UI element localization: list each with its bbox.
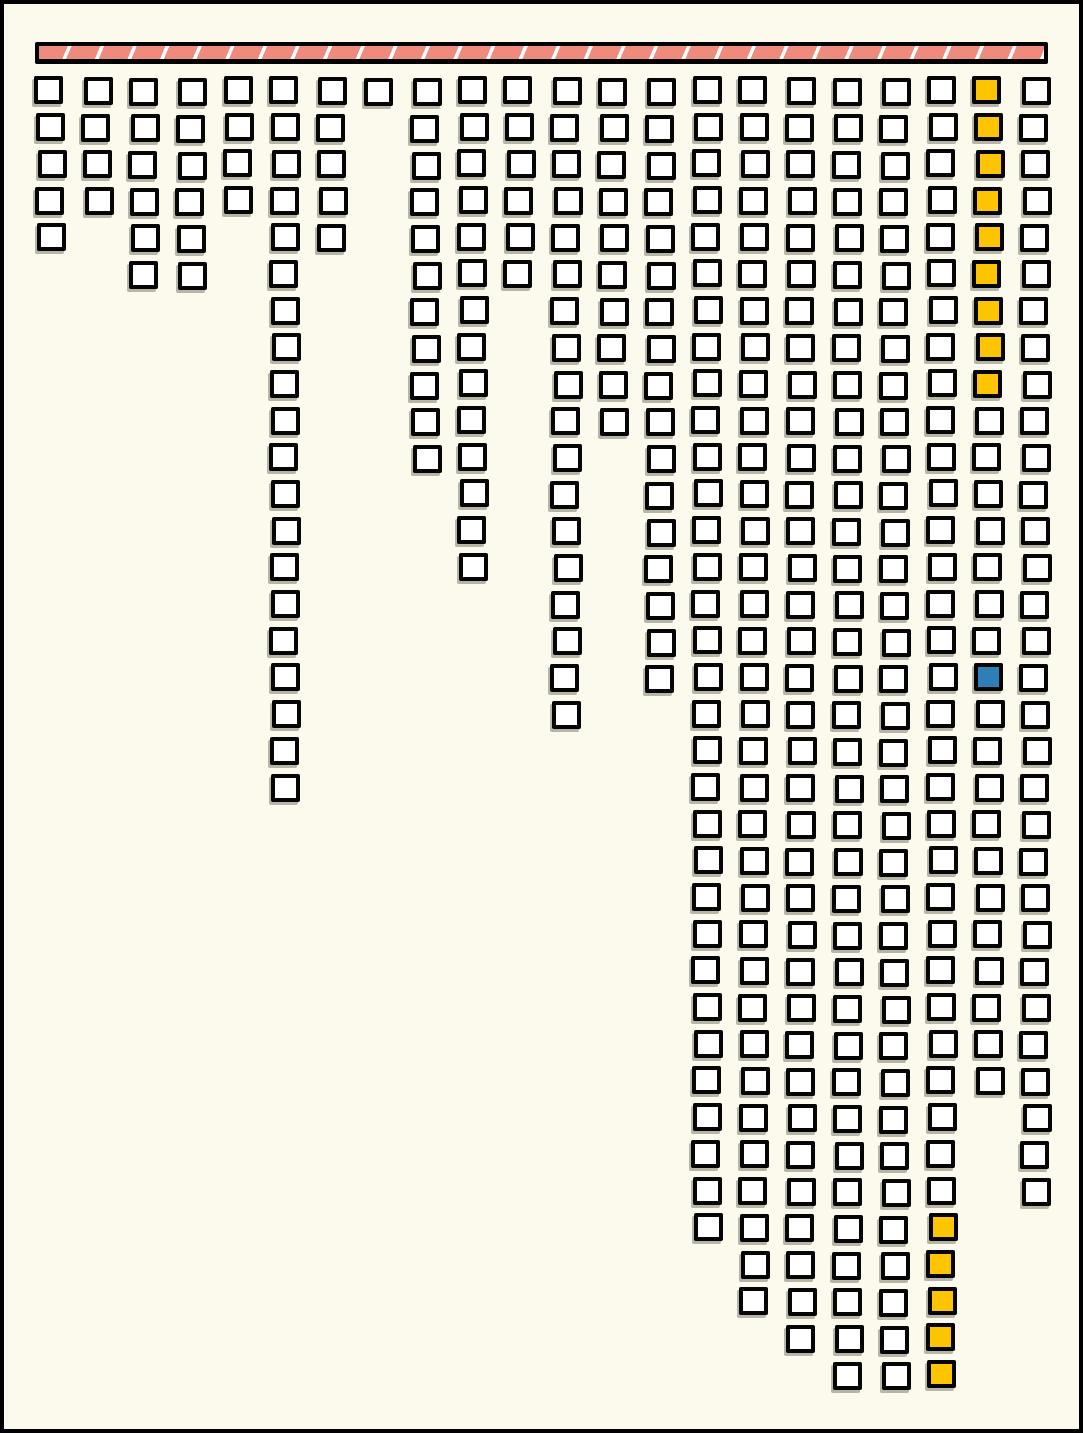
unit-square xyxy=(1022,627,1051,655)
unit-square xyxy=(832,1252,861,1280)
unit-square xyxy=(786,701,815,729)
unit-square xyxy=(1020,1141,1049,1169)
unit-square xyxy=(459,369,488,397)
unit-square xyxy=(974,113,1003,141)
unit-square xyxy=(410,188,439,216)
unit-square xyxy=(879,849,908,877)
unit-square xyxy=(786,884,815,912)
unit-square xyxy=(272,150,301,178)
unit-square xyxy=(1021,150,1050,178)
unit-square xyxy=(785,481,814,509)
unit-square xyxy=(410,298,439,326)
unit-square xyxy=(972,810,1001,838)
unit-square xyxy=(976,1067,1005,1095)
unit-square xyxy=(225,113,254,141)
unit-square xyxy=(1020,774,1049,802)
unit-square xyxy=(882,262,911,290)
unit-square xyxy=(832,701,861,729)
unit-square xyxy=(741,333,770,361)
unit-square xyxy=(460,296,489,324)
unit-square xyxy=(554,554,583,582)
unit-square xyxy=(551,591,580,619)
unit-square xyxy=(600,298,629,326)
unit-square xyxy=(81,114,110,142)
unit-square xyxy=(879,922,908,950)
unit-square xyxy=(1021,701,1050,729)
unit-square xyxy=(879,482,908,510)
unit-square xyxy=(600,224,629,252)
unit-square xyxy=(927,76,956,104)
unit-square xyxy=(881,519,910,547)
unit-square xyxy=(881,152,910,180)
unit-square xyxy=(645,115,674,143)
unit-square xyxy=(832,885,861,913)
unit-square xyxy=(691,223,720,251)
unit-square xyxy=(976,517,1005,545)
unit-square xyxy=(834,848,863,876)
unit-square xyxy=(927,993,956,1021)
unit-square xyxy=(833,1105,862,1133)
unit-square xyxy=(269,260,298,288)
unit-square xyxy=(973,187,1002,215)
unit-square xyxy=(269,76,298,104)
unit-square xyxy=(694,846,723,874)
unit-square xyxy=(882,1362,911,1390)
unit-square xyxy=(926,956,955,984)
unit-square xyxy=(37,223,66,251)
unit-square xyxy=(740,1214,769,1242)
unit-square xyxy=(645,665,674,693)
unit-square xyxy=(1023,371,1052,399)
unit-square xyxy=(271,113,300,141)
unit-square xyxy=(786,958,815,986)
unit-square xyxy=(85,187,114,215)
unit-square xyxy=(786,1141,815,1169)
unit-square xyxy=(786,774,815,802)
unit-square xyxy=(694,296,723,324)
unit-square xyxy=(692,516,721,544)
unit-square xyxy=(412,152,441,180)
unit-square xyxy=(552,334,581,362)
unit-square xyxy=(694,1213,723,1241)
unit-square xyxy=(644,555,673,583)
unit-square xyxy=(691,1140,720,1168)
unit-square xyxy=(691,956,720,984)
unit-square xyxy=(129,261,158,289)
unit-square xyxy=(879,1216,908,1244)
unit-square xyxy=(553,77,582,105)
unit-square xyxy=(693,736,722,764)
unit-square xyxy=(646,408,675,436)
unit-square xyxy=(1022,260,1051,288)
unit-square xyxy=(413,78,442,106)
unit-square xyxy=(224,186,253,214)
unit-square xyxy=(271,407,300,435)
unit-square xyxy=(741,700,770,728)
unit-square xyxy=(879,188,908,216)
unit-square xyxy=(741,1067,770,1095)
unit-square xyxy=(503,260,532,288)
unit-square xyxy=(785,1214,814,1242)
unit-square xyxy=(271,663,300,691)
unit-square xyxy=(929,479,958,507)
unit-square xyxy=(740,590,769,618)
unit-square xyxy=(598,78,627,106)
unit-square xyxy=(271,774,300,802)
unit-square xyxy=(926,590,955,618)
unit-square xyxy=(740,480,769,508)
unit-square xyxy=(926,1323,955,1351)
unit-square xyxy=(316,114,345,142)
unit-square xyxy=(269,443,298,471)
unit-square xyxy=(552,517,581,545)
unit-square xyxy=(975,223,1004,251)
unit-square xyxy=(740,847,769,875)
unit-square xyxy=(972,627,1001,655)
unit-square xyxy=(1022,444,1051,472)
unit-square xyxy=(786,517,815,545)
unit-square xyxy=(1019,481,1048,509)
unit-square xyxy=(692,1066,721,1094)
unit-square xyxy=(457,516,486,544)
chart-canvas xyxy=(0,0,1083,1433)
unit-square xyxy=(1022,77,1051,105)
unit-square xyxy=(832,1068,861,1096)
unit-square xyxy=(740,297,769,325)
unit-square xyxy=(411,225,440,253)
unit-square xyxy=(741,517,770,545)
unit-square xyxy=(833,555,862,583)
unit-square xyxy=(835,958,864,986)
unit-square xyxy=(974,1030,1003,1058)
unit-square xyxy=(973,370,1002,398)
unit-square xyxy=(738,627,767,655)
unit-square xyxy=(741,884,770,912)
unit-square xyxy=(644,372,673,400)
unit-square xyxy=(835,1142,864,1170)
unit-square xyxy=(926,1250,955,1278)
unit-square xyxy=(1023,187,1052,215)
unit-square xyxy=(739,553,768,581)
unit-square xyxy=(928,186,957,214)
unit-square xyxy=(926,406,955,434)
unit-square xyxy=(786,334,815,362)
unit-square xyxy=(833,1178,862,1206)
unit-square xyxy=(786,1251,815,1279)
unit-square xyxy=(926,516,955,544)
unit-square xyxy=(1021,517,1050,545)
unit-square xyxy=(647,335,676,363)
unit-square xyxy=(788,371,817,399)
unit-square xyxy=(128,151,157,179)
unit-square xyxy=(928,1287,957,1315)
unit-square xyxy=(271,223,300,251)
unit-square xyxy=(973,920,1002,948)
unit-square xyxy=(319,187,348,215)
unit-square xyxy=(223,149,252,177)
unit-square xyxy=(271,297,300,325)
unit-square xyxy=(881,702,910,730)
unit-square xyxy=(834,481,863,509)
unit-square xyxy=(1019,664,1048,692)
unit-square xyxy=(317,224,346,252)
unit-square xyxy=(460,479,489,507)
unit-square xyxy=(554,371,583,399)
unit-square xyxy=(786,224,815,252)
unit-square xyxy=(879,1106,908,1134)
unit-square xyxy=(692,149,721,177)
unit-square xyxy=(270,737,299,765)
unit-square xyxy=(693,626,722,654)
unit-square xyxy=(788,1288,817,1316)
unit-square xyxy=(833,738,862,766)
unit-square xyxy=(694,1030,723,1058)
unit-square xyxy=(974,663,1003,691)
unit-square xyxy=(458,443,487,471)
unit-square xyxy=(271,590,300,618)
unit-square xyxy=(551,407,580,435)
unit-square xyxy=(973,553,1002,581)
unit-square xyxy=(834,298,863,326)
unit-square xyxy=(413,445,442,473)
unit-square xyxy=(740,407,769,435)
unit-square xyxy=(83,150,112,178)
unit-square xyxy=(926,700,955,728)
unit-square xyxy=(788,737,817,765)
unit-square xyxy=(833,445,862,473)
unit-square xyxy=(928,920,957,948)
unit-square xyxy=(787,811,816,839)
unit-square xyxy=(833,811,862,839)
unit-square xyxy=(459,186,488,214)
unit-square xyxy=(550,114,579,142)
unit-square xyxy=(833,1362,862,1390)
unit-square xyxy=(553,627,582,655)
unit-square xyxy=(740,223,769,251)
unit-square xyxy=(741,150,770,178)
unit-square xyxy=(880,408,909,436)
unit-square xyxy=(597,151,626,179)
unit-square xyxy=(694,479,723,507)
unit-square xyxy=(693,76,722,104)
unit-square xyxy=(645,298,674,326)
unit-square xyxy=(881,335,910,363)
unit-square xyxy=(927,810,956,838)
unit-square xyxy=(1019,848,1048,876)
unit-square xyxy=(178,78,207,106)
unit-square xyxy=(1023,921,1052,949)
unit-square xyxy=(1019,114,1048,142)
unit-square xyxy=(882,445,911,473)
unit-square xyxy=(785,114,814,142)
unit-square xyxy=(835,408,864,436)
unit-square xyxy=(503,76,532,104)
unit-square xyxy=(410,115,439,143)
unit-square xyxy=(553,444,582,472)
unit-square xyxy=(738,76,767,104)
unit-square xyxy=(457,149,486,177)
unit-square xyxy=(457,333,486,361)
unit-square xyxy=(929,846,958,874)
unit-square xyxy=(882,996,911,1024)
unit-square xyxy=(554,187,583,215)
unit-square xyxy=(926,883,955,911)
unit-square xyxy=(834,114,863,142)
unit-square xyxy=(175,188,204,216)
unit-square xyxy=(882,78,911,106)
unit-square xyxy=(929,663,958,691)
unit-square xyxy=(693,259,722,287)
unit-square xyxy=(928,1103,957,1131)
unit-square xyxy=(176,115,205,143)
unit-square xyxy=(552,701,581,729)
unit-square xyxy=(833,261,862,289)
unit-square xyxy=(269,627,298,655)
unit-square xyxy=(927,1360,956,1388)
unit-square xyxy=(693,443,722,471)
unit-square xyxy=(787,627,816,655)
unit-square xyxy=(929,296,958,324)
unit-square xyxy=(740,113,769,141)
unit-square xyxy=(833,188,862,216)
unit-square xyxy=(317,150,346,178)
unit-square xyxy=(691,590,720,618)
unit-square xyxy=(785,297,814,325)
unit-square xyxy=(131,114,160,142)
unit-square xyxy=(926,1140,955,1168)
unit-square xyxy=(738,1177,767,1205)
unit-square xyxy=(973,737,1002,765)
unit-square xyxy=(787,1178,816,1206)
unit-square xyxy=(36,113,65,141)
unit-square xyxy=(881,1069,910,1097)
unit-square xyxy=(177,225,206,253)
unit-square xyxy=(739,187,768,215)
unit-square xyxy=(738,443,767,471)
unit-square xyxy=(553,260,582,288)
unit-square xyxy=(835,775,864,803)
unit-square xyxy=(1021,334,1050,362)
unit-square xyxy=(693,993,722,1021)
unit-square xyxy=(879,372,908,400)
unit-square xyxy=(882,812,911,840)
unit-square xyxy=(647,262,676,290)
unit-square xyxy=(786,407,815,435)
unit-square xyxy=(1023,554,1052,582)
unit-square xyxy=(647,152,676,180)
unit-square xyxy=(926,773,955,801)
unit-square xyxy=(1023,737,1052,765)
unit-square xyxy=(926,149,955,177)
unit-square xyxy=(974,847,1003,875)
unit-square xyxy=(1023,1104,1052,1132)
unit-square xyxy=(926,223,955,251)
unit-square xyxy=(739,370,768,398)
unit-square xyxy=(927,259,956,287)
unit-square xyxy=(881,885,910,913)
unit-square xyxy=(129,78,158,106)
unit-square xyxy=(738,260,767,288)
unit-square xyxy=(972,443,1001,471)
unit-square xyxy=(833,1288,862,1316)
unit-square xyxy=(975,774,1004,802)
unit-square xyxy=(270,553,299,581)
unit-square xyxy=(647,519,676,547)
unit-square xyxy=(927,443,956,471)
unit-square xyxy=(550,664,579,692)
unit-square xyxy=(131,224,160,252)
unit-square xyxy=(598,261,627,289)
unit-square xyxy=(880,1326,909,1354)
unit-square xyxy=(364,78,393,106)
unit-square xyxy=(1022,811,1051,839)
unit-square xyxy=(740,663,769,691)
unit-square xyxy=(550,297,579,325)
unit-square xyxy=(879,1289,908,1317)
unit-square xyxy=(691,406,720,434)
unit-square xyxy=(879,1032,908,1060)
unit-square xyxy=(739,737,768,765)
unit-square xyxy=(976,150,1005,178)
unit-square xyxy=(551,224,580,252)
unit-square xyxy=(693,553,722,581)
unit-square xyxy=(834,665,863,693)
unit-square xyxy=(224,76,253,104)
unit-square xyxy=(929,113,958,141)
unit-square xyxy=(692,700,721,728)
unit-square xyxy=(975,407,1004,435)
unit-square xyxy=(881,1252,910,1280)
unit-square xyxy=(272,517,301,545)
unit-square xyxy=(1019,297,1048,325)
unit-square xyxy=(1022,1178,1051,1206)
unit-square xyxy=(832,518,861,546)
unit-square xyxy=(788,1104,817,1132)
unit-square xyxy=(880,775,909,803)
unit-square xyxy=(879,739,908,767)
unit-square xyxy=(880,592,909,620)
unit-square xyxy=(178,262,207,290)
unit-square xyxy=(178,152,207,180)
unit-square xyxy=(928,369,957,397)
unit-square xyxy=(976,333,1005,361)
unit-square xyxy=(270,187,299,215)
unit-square xyxy=(694,663,723,691)
unit-square xyxy=(879,115,908,143)
unit-square xyxy=(412,335,441,363)
unit-square xyxy=(740,957,769,985)
unit-square xyxy=(835,224,864,252)
unit-square xyxy=(1021,884,1050,912)
unit-square xyxy=(879,298,908,326)
unit-square xyxy=(691,773,720,801)
unit-square xyxy=(599,371,628,399)
unit-square xyxy=(786,1325,815,1353)
unit-square xyxy=(929,1030,958,1058)
unit-square xyxy=(739,1104,768,1132)
unit-square xyxy=(834,1215,863,1243)
unit-square xyxy=(1020,958,1049,986)
unit-square xyxy=(272,700,301,728)
unit-square xyxy=(835,1325,864,1353)
unit-square xyxy=(646,592,675,620)
unit-square xyxy=(975,590,1004,618)
unit-square xyxy=(1020,407,1049,435)
unit-square xyxy=(788,187,817,215)
unit-square xyxy=(647,445,676,473)
unit-square xyxy=(693,186,722,214)
unit-square xyxy=(597,334,626,362)
